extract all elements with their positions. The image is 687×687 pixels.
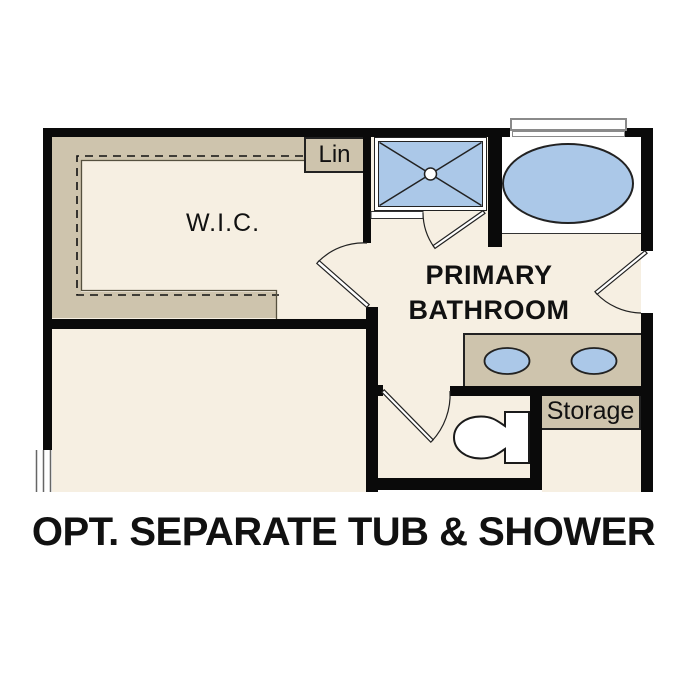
plan-linework — [0, 0, 687, 687]
floor-plan-canvas: Lin Storage — [0, 0, 687, 687]
wic-room-label: W.I.C. — [148, 209, 298, 238]
toilet-room-door-leaf — [382, 390, 433, 442]
wic-door-swing-arc — [318, 243, 367, 262]
wic-door-leaf — [317, 261, 369, 308]
plan-caption: OPT. SEPARATE TUB & SHOWER — [0, 510, 687, 555]
primary-bathroom-room-label: PRIMARY BATHROOM — [389, 258, 589, 328]
sink-left-icon — [485, 348, 530, 374]
primary-bathroom-label-line2: BATHROOM — [409, 295, 570, 325]
entry-door-swing-arc — [596, 293, 641, 313]
tub-icon — [503, 144, 633, 223]
shower-threshold — [371, 212, 423, 219]
entry-door-leaf — [595, 251, 647, 295]
shower-drain-icon — [425, 168, 437, 180]
shower-door-leaf — [433, 211, 485, 249]
toilet-room-door-swing-arc — [432, 391, 450, 441]
window-bedroom-left-icon — [37, 450, 51, 492]
toilet-icon — [454, 412, 529, 463]
shower-door-swing-arc — [423, 213, 434, 247]
primary-bathroom-label-line1: PRIMARY — [425, 260, 552, 290]
sink-right-icon — [572, 348, 617, 374]
